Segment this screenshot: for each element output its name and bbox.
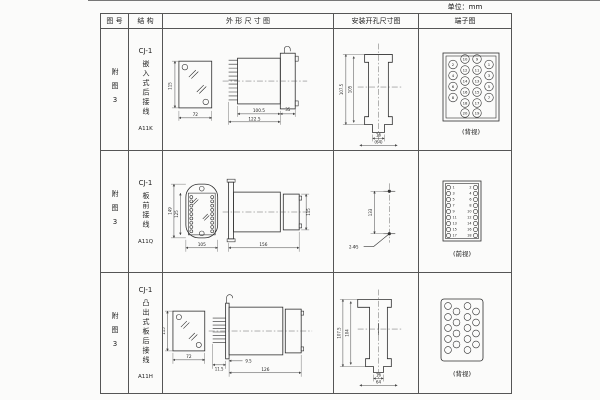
terminal-number: 11 [475, 67, 480, 72]
dim-body-depth: 100.5 [253, 107, 265, 113]
dim-pin-depth: 11.5 [215, 366, 224, 371]
dim-inner-height: 104 [344, 329, 349, 337]
install-drawing-a11k: 107.5 105 16 (64) [334, 29, 419, 151]
dim-outer-height: 107.5 [336, 327, 341, 339]
terminal-svg-a11k: 2 4 6 8 10 12 14 16 18 9 11 13 15 17 1 3 [419, 29, 511, 151]
terminal-number: 17 [453, 233, 457, 237]
structure-code: A11K [138, 126, 152, 132]
terminal-pins: 1 3 5 7 9 11 13 15 17 2 4 6 8 10 12 14 1 [446, 185, 477, 237]
terminal-number: 4 [469, 191, 471, 195]
spec-table: 图 号 结 构 外 形 尺 寸 图 安装开孔尺寸图 端子图 附图3 CJ-1 嵌… [100, 13, 512, 394]
dim-side-height: 115 [306, 207, 311, 215]
terminal-number: 13 [475, 78, 480, 83]
side-view [223, 179, 310, 242]
outline-drawing-a11h: 115 72 11.5 9.5 126 [163, 273, 334, 393]
terminal-number: 10 [463, 56, 468, 61]
terminal-number: 9 [476, 56, 479, 61]
header-structure: 结 构 [129, 14, 163, 29]
terminal-number: 18 [463, 100, 468, 105]
view-label: (背视) [453, 369, 471, 378]
terminal-number: 17 [475, 100, 480, 105]
dim-side-length: 156 [259, 241, 267, 247]
dim-front-outer-height: 149 [167, 206, 172, 214]
terminal-svg-a11h: (背视) [419, 273, 511, 393]
terminal-number: 3 [453, 191, 455, 195]
model-label: CJ-1 [139, 286, 153, 294]
figure-no-text: 附图3 [111, 190, 118, 233]
terminal-number: 9 [453, 209, 455, 213]
terminal-number: 4 [452, 72, 455, 77]
terminal-number: 12 [463, 67, 468, 72]
front-view [179, 61, 212, 108]
outline-svg-a11k: 115 72 100.5 35 122.5 [163, 29, 333, 151]
side-view [209, 295, 312, 359]
terminal-number: 18 [467, 233, 471, 237]
dim-slot-width: 16 [376, 372, 382, 377]
install-drawing-a11q: 133 2-Φ5 [334, 151, 419, 273]
terminal-drawing-a11h: (背视) [419, 273, 511, 393]
dim-total-depth: 122.5 [248, 116, 260, 122]
terminal-number: 13 [453, 221, 457, 225]
figure-no-a11h: 附图3 [101, 273, 129, 393]
terminal-svg-a11q: 1 3 5 7 9 11 13 15 17 2 4 6 8 10 12 14 1 [419, 151, 511, 273]
header-install-dims: 安装开孔尺寸图 [334, 14, 419, 29]
dim-front-width: 72 [193, 111, 199, 117]
dim-body-depth: 126 [261, 367, 269, 373]
figure-no-a11q: 附图3 [101, 151, 129, 273]
dim-hole-span: 64 [376, 379, 382, 384]
dim-inner-height: 105 [347, 85, 352, 93]
terminal-number: 10 [467, 209, 471, 213]
terminal-number: 5 [453, 197, 455, 201]
dimensions: 115 72 100.5 35 122.5 [167, 61, 295, 125]
dim-slot-width: 16 [376, 132, 382, 137]
dim-front-height: 115 [167, 81, 172, 89]
install-drawing-a11h: 107.5 104 16 64 [334, 273, 419, 393]
terminal-number: 16 [463, 89, 468, 94]
dim-hole-spacing: 133 [368, 208, 373, 216]
unit-label: 单位：mm [420, 2, 510, 12]
structure-code: A11Q [138, 239, 153, 245]
front-view [186, 184, 218, 238]
terminal-number: 2 [469, 185, 471, 189]
model-label: CJ-1 [139, 47, 153, 55]
structure-code: A11H [138, 374, 153, 380]
terminal-drawing-a11k: 2 4 6 8 10 12 14 16 18 9 11 13 15 17 1 3 [419, 29, 511, 151]
terminal-number: 6 [452, 83, 455, 88]
terminal-number: 20 [463, 110, 468, 115]
outline-drawing-a11k: 115 72 100.5 35 122.5 [163, 29, 334, 151]
header-figure-no: 图 号 [101, 14, 129, 29]
dim-hole-span: (64) [374, 139, 383, 144]
install-svg-a11q: 133 2-Φ5 [334, 151, 418, 273]
terminal-number: 7 [488, 94, 491, 99]
terminal-number: 14 [463, 78, 468, 83]
terminal-pins: 2 4 6 8 10 12 14 16 18 9 11 13 15 17 1 3 [449, 54, 494, 117]
terminal-number: 12 [467, 215, 471, 219]
terminal-number: 5 [488, 83, 491, 88]
terminal-number: 2 [452, 61, 455, 66]
terminal-number: 16 [467, 227, 471, 231]
header-terminal-diagram: 端子图 [419, 14, 511, 29]
structure-name: 板前接线 [142, 192, 149, 230]
terminal-number: 1 [453, 185, 455, 189]
terminal-number: 19 [475, 110, 480, 115]
structure-name: 嵌入式后接线 [142, 60, 149, 117]
spec-sheet-page: 单位：mm 图 号 结 构 外 形 尺 寸 图 安装开孔尺寸图 端子图 附图3 … [0, 0, 600, 400]
dimensions: 115 72 11.5 9.5 126 [163, 311, 301, 377]
dim-front-width: 72 [186, 354, 192, 360]
terminal-number: 8 [452, 94, 455, 99]
terminal-number: 1 [488, 61, 491, 66]
terminal-number: 3 [488, 72, 491, 77]
outline-svg-a11q: 149 125 105 156 115 [163, 151, 333, 273]
terminal-number: 14 [467, 221, 471, 225]
terminal-number: 15 [453, 227, 457, 231]
terminal-drawing-a11q: 1 3 5 7 9 11 13 15 17 2 4 6 8 10 12 14 1 [419, 151, 511, 273]
dim-offset: 9.5 [245, 358, 252, 363]
front-view [173, 311, 205, 351]
dim-outer-height: 107.5 [339, 83, 344, 95]
outline-drawing-a11q: 149 125 105 156 115 [163, 151, 334, 273]
header-outline-dims: 外 形 尺 寸 图 [163, 14, 334, 29]
terminal-number: 15 [475, 89, 480, 94]
dim-front-height: 115 [163, 327, 166, 335]
structure-a11k: CJ-1 嵌入式后接线 A11K [129, 29, 163, 151]
view-label: (背视) [462, 127, 480, 136]
install-svg-a11h: 107.5 104 16 64 [334, 273, 418, 393]
side-view [223, 46, 308, 109]
page-top-rule [88, 0, 600, 1]
structure-name: 凸出式板后接线 [142, 299, 149, 366]
figure-no-text: 附图3 [111, 68, 118, 111]
outline-svg-a11h: 115 72 11.5 9.5 126 [163, 273, 333, 393]
terminal-number: 7 [453, 203, 455, 207]
install-svg-a11k: 107.5 105 16 (64) [334, 29, 418, 151]
hole-note: 2-Φ5 [349, 244, 359, 249]
figure-no-a11k: 附图3 [101, 29, 129, 151]
dim-front-inner-height: 125 [174, 209, 179, 217]
terminal-number: 11 [453, 215, 457, 219]
terminal-pins [445, 303, 480, 354]
dim-front-width: 105 [198, 241, 206, 247]
structure-a11h: CJ-1 凸出式板后接线 A11H [129, 273, 163, 393]
dim-flange-depth: 35 [285, 106, 291, 111]
terminal-number: 6 [469, 197, 471, 201]
structure-a11q: CJ-1 板前接线 A11Q [129, 151, 163, 273]
view-label: (前视) [453, 249, 471, 258]
model-label: CJ-1 [139, 179, 153, 187]
terminal-number: 8 [469, 203, 471, 207]
figure-no-text: 附图3 [111, 312, 118, 355]
